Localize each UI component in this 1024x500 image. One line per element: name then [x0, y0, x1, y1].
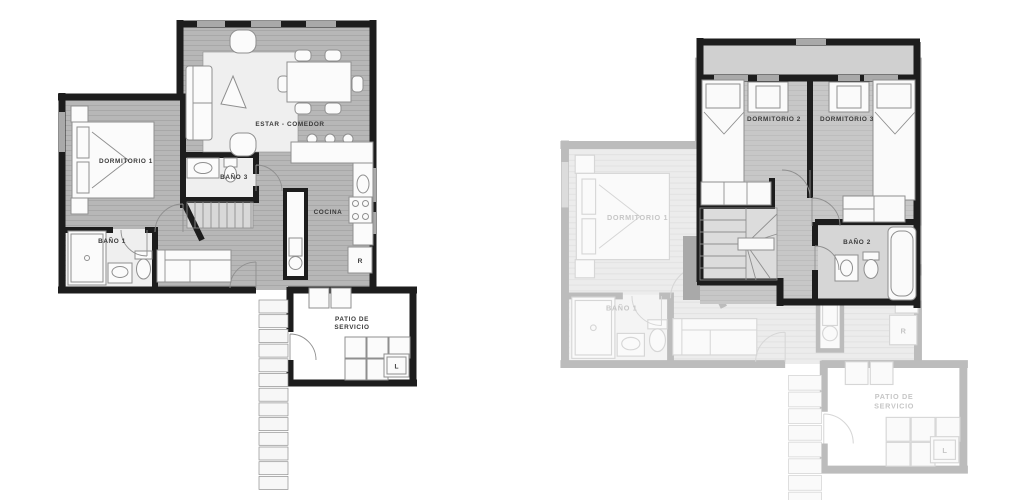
label-bano2: BAÑO 2	[843, 237, 871, 246]
stair-landing	[738, 238, 774, 250]
single-bed-3	[873, 80, 915, 200]
nightstand-dorm2	[748, 82, 788, 112]
balcony-strip-floor	[700, 45, 917, 78]
label-dormitorio2: DORMITORIO 2	[747, 116, 801, 123]
closet-dorm2	[701, 182, 771, 205]
closet-dorm3	[843, 196, 905, 222]
label-dormitorio3: DORMITORIO 3	[820, 116, 874, 123]
floorplan-canvas: DORMITORIO 1 ESTAR - COMEDOR BAÑO 3 COCI…	[0, 0, 1024, 500]
second-floor-plan: DORMITORIO 2 DORMITORIO 3 BAÑO 2	[683, 38, 920, 308]
floorplans-svg: DORMITORIO 1 ESTAR - COMEDOR BAÑO 3 COCI…	[0, 0, 1024, 500]
first-floor-instance	[58, 20, 417, 489]
nightstand-dorm3	[829, 82, 869, 112]
